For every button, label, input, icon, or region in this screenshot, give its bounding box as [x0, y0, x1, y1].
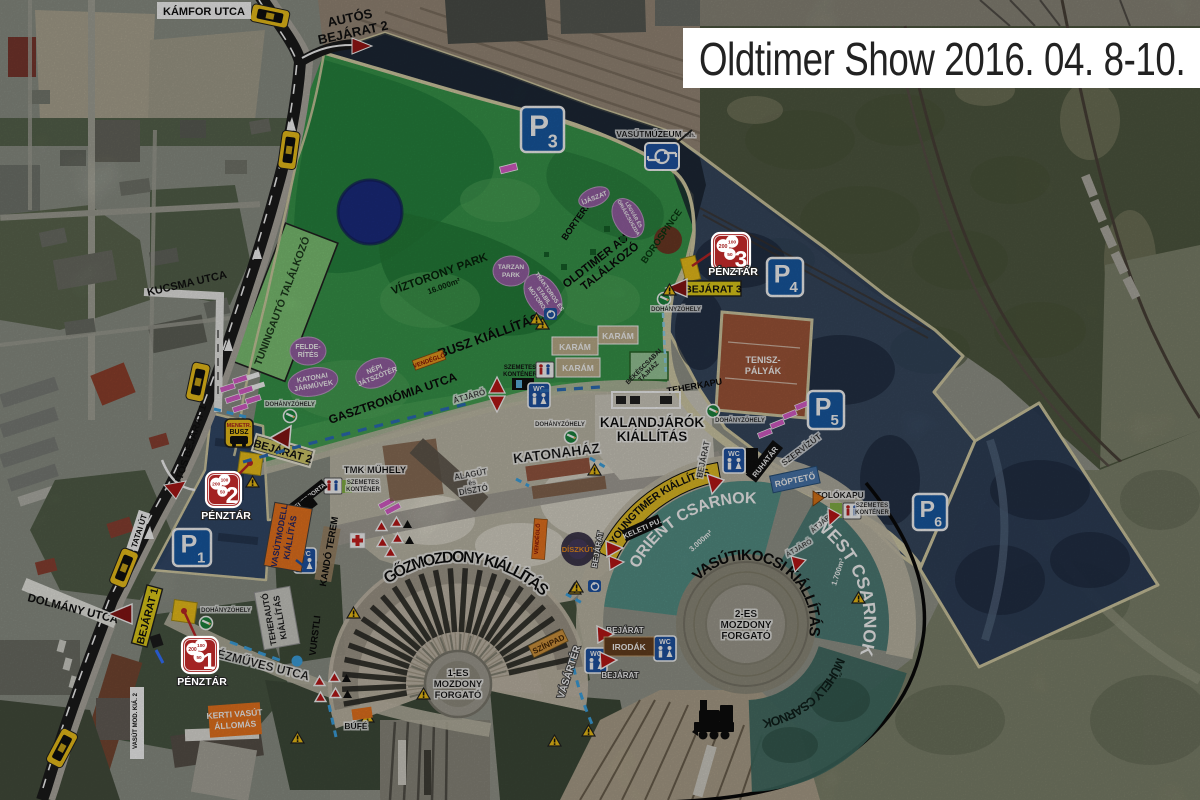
svg-text:1: 1: [197, 549, 205, 566]
svg-text:200: 200: [188, 647, 197, 653]
svg-text:DOHÁNYZÓHELY: DOHÁNYZÓHELY: [265, 400, 315, 408]
svg-text:2-ES: 2-ES: [735, 609, 758, 620]
svg-text:2: 2: [226, 482, 239, 508]
svg-text:DOHÁNYZÓHELY: DOHÁNYZÓHELY: [535, 420, 585, 428]
svg-text:SZEMETESKONTÉNER: SZEMETESKONTÉNER: [503, 365, 537, 378]
svg-text:VASÚT MOD. KIÁ. 2: VASÚT MOD. KIÁ. 2: [132, 692, 139, 749]
svg-text:3: 3: [548, 132, 558, 152]
svg-text:P: P: [529, 110, 549, 143]
svg-text:FORGATÓ: FORGATÓ: [435, 689, 482, 701]
svg-text:FORGATÓ: FORGATÓ: [721, 629, 770, 642]
svg-text:P: P: [920, 496, 935, 522]
svg-text:TENISZ-: TENISZ-: [746, 355, 781, 365]
svg-text:KARÁM: KARÁM: [559, 342, 591, 352]
svg-text:P: P: [774, 260, 791, 288]
svg-text:DOHÁNYZÓHELY: DOHÁNYZÓHELY: [201, 606, 251, 614]
svg-text:BÚFÉ: BÚFÉ: [344, 720, 367, 731]
svg-text:KÁMFOR UTCA: KÁMFOR UTCA: [163, 5, 245, 18]
svg-text:BUSZ: BUSZ: [229, 429, 249, 436]
svg-text:PÉNZTÁR: PÉNZTÁR: [201, 509, 251, 522]
svg-text:6: 6: [934, 513, 942, 529]
svg-text:PÉNZTÁR: PÉNZTÁR: [708, 265, 758, 278]
svg-text:PARK: PARK: [502, 272, 520, 279]
svg-text:BEJÁRAT 3: BEJÁRAT 3: [684, 283, 742, 296]
svg-text:200: 200: [719, 244, 728, 250]
svg-text:P: P: [181, 531, 198, 559]
svg-text:4: 4: [789, 279, 798, 296]
svg-text:P: P: [815, 393, 832, 421]
svg-text:Oldtimer Show 2016. 04. 8-10.: Oldtimer Show 2016. 04. 8-10.: [699, 33, 1185, 85]
svg-text:RÍTÉS: RÍTÉS: [298, 350, 319, 359]
svg-text:TARZAN: TARZAN: [498, 264, 525, 271]
svg-text:KARÁM: KARÁM: [562, 363, 594, 373]
svg-text:5: 5: [830, 412, 838, 429]
svg-text:MOZDONY: MOZDONY: [720, 620, 771, 631]
svg-text:BEJÁRAT: BEJÁRAT: [601, 671, 638, 680]
svg-text:SZEMETESKONTÉNER: SZEMETESKONTÉNER: [346, 480, 380, 493]
svg-text:50: 50: [196, 655, 202, 660]
svg-text:100: 100: [728, 240, 736, 246]
svg-text:KARÁM: KARÁM: [602, 331, 634, 341]
svg-text:KIÁLLÍTÁS: KIÁLLÍTÁS: [617, 429, 688, 444]
svg-text:MOZDONY: MOZDONY: [434, 679, 483, 690]
svg-text:50: 50: [727, 252, 733, 258]
svg-text:DOHÁNYZÓHELY: DOHÁNYZÓHELY: [651, 305, 701, 313]
svg-text:200: 200: [212, 482, 220, 488]
svg-text:DOHÁNYZÓHELY: DOHÁNYZÓHELY: [715, 416, 765, 424]
svg-text:PÉNZTÁR: PÉNZTÁR: [177, 675, 227, 688]
svg-text:FELDE-: FELDE-: [295, 344, 321, 351]
svg-text:IRODÁK: IRODÁK: [612, 642, 646, 652]
svg-text:1-ES: 1-ES: [447, 668, 468, 679]
svg-text:SZEMETESKONTÉNER: SZEMETESKONTÉNER: [855, 503, 889, 516]
svg-text:DÍSZKÚT: DÍSZKÚT: [562, 545, 595, 554]
svg-text:PÁLYÁK: PÁLYÁK: [745, 366, 782, 376]
svg-text:1: 1: [203, 648, 216, 674]
svg-text:TMK MŰHELY: TMK MŰHELY: [344, 464, 407, 476]
svg-text:KALANDJÁRÓK: KALANDJÁRÓK: [600, 415, 705, 430]
